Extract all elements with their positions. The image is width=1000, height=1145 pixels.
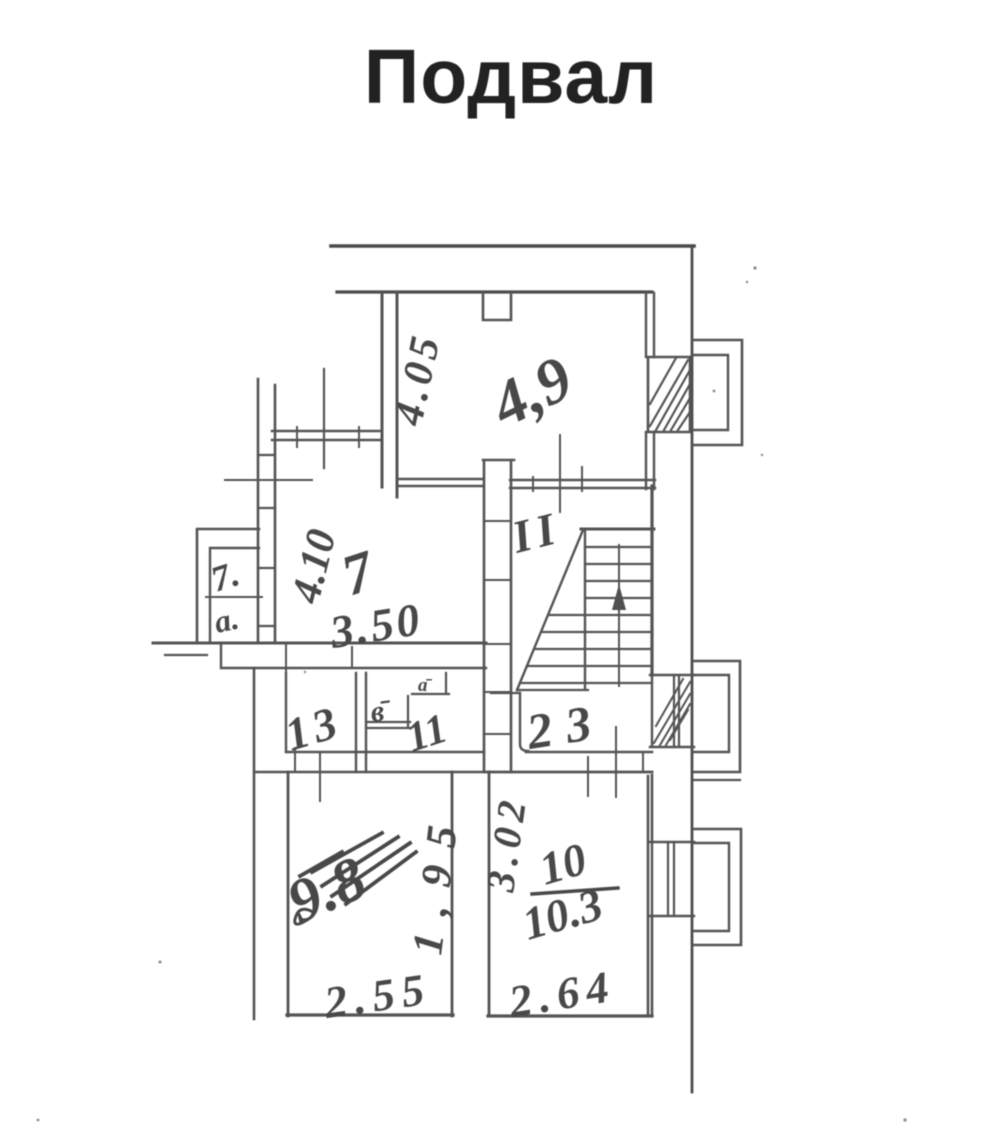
svg-text:23: 23 (522, 692, 609, 760)
svg-text:4,9: 4,9 (479, 342, 583, 441)
svg-text:II: II (506, 502, 566, 563)
svg-text:1,95: 1,95 (404, 805, 469, 957)
svg-text:7.: 7. (206, 553, 244, 599)
svg-text:а̄: а̄ (418, 675, 433, 696)
svg-text:4.10: 4.10 (283, 525, 346, 608)
svg-text:7: 7 (334, 537, 384, 608)
svg-text:4.05: 4.05 (386, 328, 451, 430)
svg-text:2.55: 2.55 (320, 964, 434, 1029)
svg-text:3.02: 3.02 (477, 791, 535, 895)
svg-text:10.3: 10.3 (517, 878, 608, 949)
svg-text:3.50: 3.50 (326, 593, 426, 658)
svg-text:а.: а. (211, 600, 242, 640)
svg-text:в̄: в̄ (368, 693, 394, 729)
